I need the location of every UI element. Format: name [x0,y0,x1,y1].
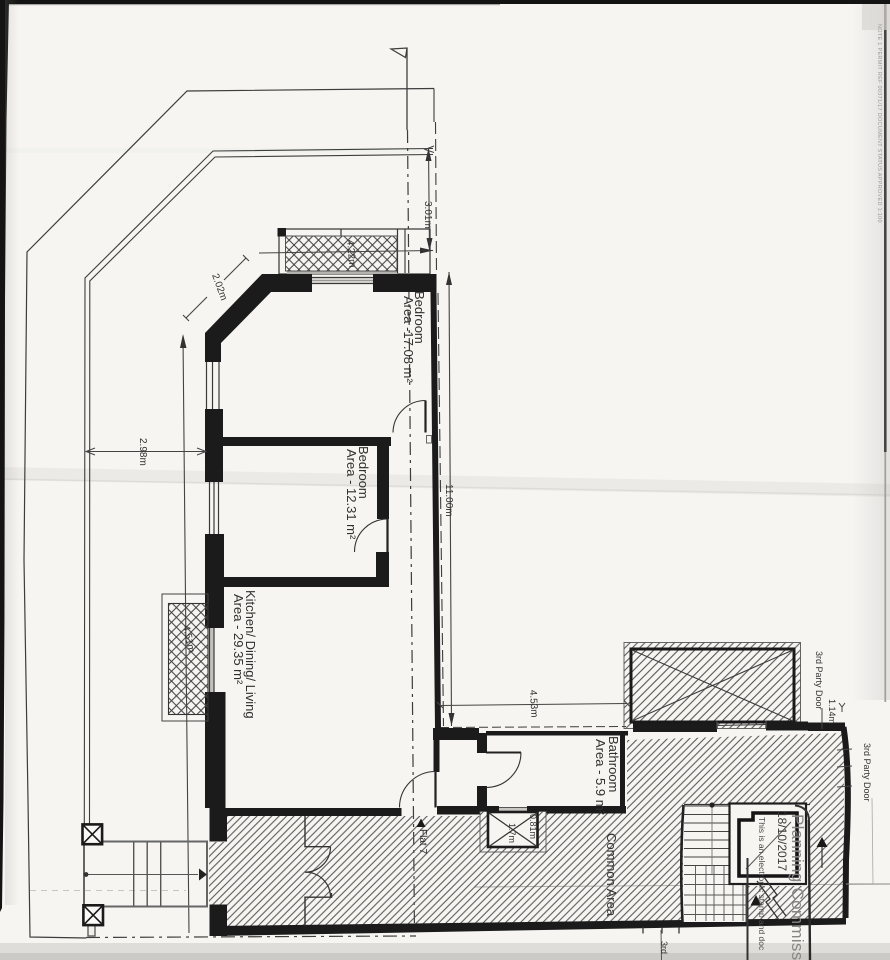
svg-text:Area - 12.31 m²: Area - 12.31 m² [344,449,359,540]
svg-text:1.14m: 1.14m [827,699,837,724]
svg-text:This is an electronic stamp an: This is an electronic stamp and doc [757,817,767,951]
svg-text:4.53m: 4.53m [527,690,539,718]
svg-text:1.7m: 1.7m [507,823,517,843]
svg-text:18/10/2017: 18/10/2017 [775,811,789,871]
svg-text:Area - 29.35 m²: Area - 29.35 m² [231,594,246,685]
svg-text:2.98m: 2.98m [137,438,148,466]
svg-text:Common Area: Common Area [604,833,619,917]
svg-text:3rd Party Door: 3rd Party Door [862,743,872,802]
svg-text:NOTE 1 PERMIT REF 00371/17 DOC: NOTE 1 PERMIT REF 00371/17 DOCUMENT STAT… [876,24,882,223]
svg-text:11.00m: 11.00m [443,484,454,517]
svg-text:3rd: 3rd [659,941,669,954]
svg-text:3rd Party Door: 3rd Party Door [814,651,824,710]
svg-text:Planning Commissio: Planning Commissio [788,814,807,960]
svg-text:Flat 7: Flat 7 [417,829,428,854]
svg-text:0.81m: 0.81m [528,814,538,839]
svg-text:Area - 5.9 m²: Area - 5.9 m² [593,739,608,816]
svg-text:Area -17.08 m²: Area -17.08 m² [401,296,416,383]
svg-text:3.01m: 3.01m [422,201,433,229]
